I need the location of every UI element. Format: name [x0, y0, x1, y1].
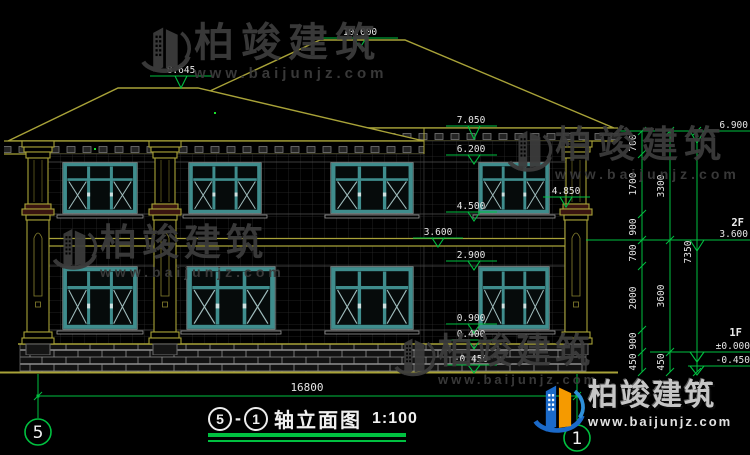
brand-url: www.baijunjz.com: [555, 167, 740, 182]
marker-label: 4.500: [457, 201, 486, 212]
cad-dot: [94, 148, 96, 150]
brand-url: www.baijunjz.com: [194, 66, 387, 82]
title-axis-bubble-5: 5: [208, 407, 232, 431]
brand-logo-icon: [528, 380, 588, 440]
title-text: 轴立面图: [274, 404, 362, 433]
brand-logo-icon: [390, 334, 438, 382]
brand-url: www.baijunjz.com: [100, 265, 285, 280]
title-axis-bubble-1: 1: [244, 407, 268, 431]
window: [63, 163, 137, 214]
brand-name: 柏竣建筑: [438, 334, 598, 371]
marker-label: 3.600: [424, 227, 453, 238]
window: [331, 163, 413, 214]
marker-label: 0.900: [457, 313, 486, 324]
dim-label: 450: [628, 353, 639, 370]
brand-name: 柏竣建筑: [194, 22, 387, 64]
watermark-logo-color: 柏竣建筑 www.baijunjz.com: [528, 380, 732, 440]
watermark-bottom: 柏竣建筑 www.baijunjz.com: [390, 334, 598, 386]
watermark-left: 柏竣建筑 www.baijunjz.com: [48, 224, 285, 280]
brand-url: www.baijunjz.com: [588, 415, 732, 429]
grid-line-5: 5: [25, 374, 51, 445]
window: [479, 267, 550, 329]
marker-label: 6.200: [457, 144, 486, 155]
cad-dot: [214, 112, 216, 114]
dim-label: 900: [628, 332, 639, 349]
level-label: 1F: [729, 327, 742, 339]
dim-label: 2000: [628, 286, 639, 309]
title-underline-thick: [208, 433, 406, 437]
title-scale: 1:100: [372, 410, 418, 428]
dim-label: 450: [656, 353, 667, 370]
cad-canvas: 10.000 8.645 7.050 6.200 4.850 4.500 3.6…: [0, 0, 750, 455]
marker-label: ±0.000: [716, 341, 750, 352]
marker-label: 4.850: [552, 186, 581, 197]
dim-label: 3600: [656, 284, 667, 307]
marker-label: 7.050: [457, 115, 486, 126]
brand-name: 柏竣建筑: [555, 126, 740, 165]
watermark-top: 柏竣建筑 www.baijunjz.com: [136, 22, 387, 82]
grid-bubble-label: 5: [33, 423, 44, 443]
left-eave-band: [4, 141, 424, 154]
brand-name: 柏竣建筑: [100, 224, 285, 263]
brand-name: 柏竣建筑: [588, 380, 732, 412]
dim-label: 16800: [290, 381, 323, 394]
brand-logo-icon: [48, 224, 100, 276]
drawing-title: 5 - 1 轴立面图 1:100: [208, 404, 418, 433]
window: [331, 267, 413, 329]
dim-label: 900: [628, 218, 639, 235]
marker-right-f2: 2F 3.600: [586, 217, 750, 251]
brand-logo-icon: [503, 126, 555, 178]
dim-label: 7350: [683, 240, 694, 263]
brand-logo-icon: [136, 22, 194, 80]
title-dash: -: [235, 408, 241, 429]
marker-label: 3.600: [719, 229, 748, 240]
window: [189, 163, 262, 214]
watermark-right: 柏竣建筑 www.baijunjz.com: [503, 126, 740, 182]
title-underline-thin: [208, 440, 406, 442]
level-label: 2F: [731, 217, 744, 229]
marker-label: -0.450: [716, 355, 750, 366]
marker-label: 2.900: [457, 250, 486, 261]
dim-label: 700: [628, 244, 639, 261]
